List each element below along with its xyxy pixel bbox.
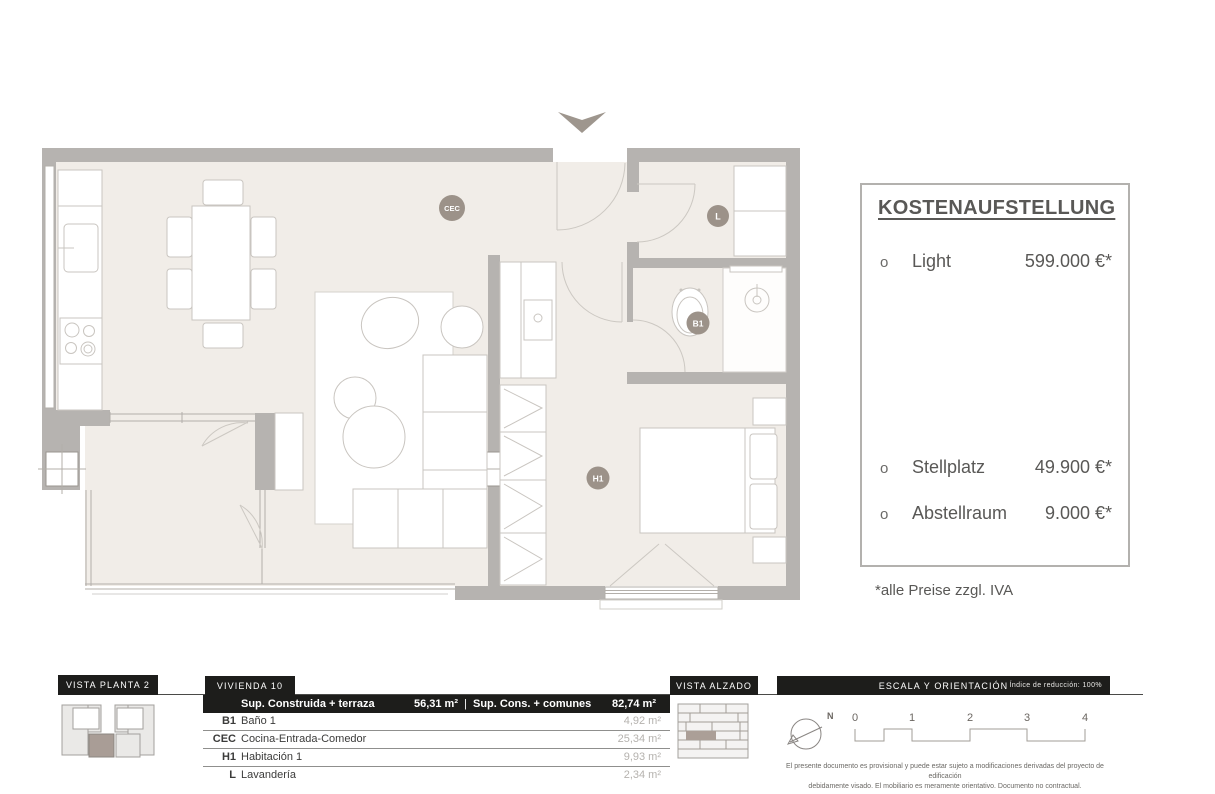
- svg-text:CEC: CEC: [444, 204, 460, 213]
- hallway-closet: [500, 262, 556, 378]
- cost-item-label: Abstellraum: [912, 503, 1007, 524]
- cost-item-price: 9.000 €*: [1045, 503, 1112, 524]
- room-code: L: [203, 767, 236, 784]
- svg-text:L: L: [715, 212, 721, 222]
- area-table: Sup. Construida + terraza 56,31 m² | Sup…: [203, 695, 670, 784]
- room-code: B1: [203, 713, 236, 730]
- svg-text:B1: B1: [693, 319, 704, 329]
- cost-item-stellplatz[interactable]: o Stellplatz 49.900 €*: [880, 457, 1112, 478]
- compass-icon: N: [788, 711, 834, 749]
- header-separator: |: [464, 695, 467, 713]
- room-name: Baño 1: [241, 713, 276, 730]
- scale-bar: 0 1 2 3 4: [852, 712, 1088, 741]
- disclaimer-line1: El presente documento es provisional y p…: [770, 762, 1120, 782]
- kitchen-furniture: [58, 170, 102, 410]
- room-area: 25,34 m²: [588, 731, 661, 748]
- bullet-icon: o: [880, 506, 912, 523]
- disclaimer-line2: debidamente visado. El mobiliario es mer…: [770, 782, 1120, 792]
- room-label-cec: CEC: [439, 195, 465, 221]
- cost-item-price: 599.000 €*: [1025, 251, 1112, 272]
- header-col1: Sup. Construida + terraza: [241, 695, 375, 713]
- svg-text:N: N: [827, 711, 834, 721]
- bullet-icon: o: [880, 460, 912, 477]
- escala-label: ESCALA Y ORIENTACIÓN: [879, 681, 1009, 691]
- vista-alzado-thumbnail: [678, 704, 748, 758]
- room-area: 4,92 m²: [588, 713, 661, 730]
- svg-text:0: 0: [852, 712, 858, 724]
- cost-panel: KOSTENAUFSTELLUNG o Light 599.000 €* o S…: [860, 183, 1130, 567]
- cost-item-label: Stellplatz: [912, 457, 985, 478]
- header-val1: 56,31 m²: [368, 695, 458, 713]
- bullet-icon: o: [880, 254, 912, 271]
- table-row: B1 Baño 1 4,92 m²: [203, 713, 670, 731]
- laundry-appliances: [734, 166, 786, 256]
- svg-text:2: 2: [967, 712, 973, 724]
- room-name: Habitación 1: [241, 749, 302, 766]
- price-footnote: *alle Preise zzgl. IVA: [875, 582, 1013, 599]
- svg-text:H1: H1: [593, 474, 604, 484]
- disclaimer: El presente documento es provisional y p…: [770, 762, 1120, 792]
- vivienda-tag: VIVIENDA 10: [205, 676, 295, 695]
- table-row: CEC Cocina-Entrada-Comedor 25,34 m²: [203, 731, 670, 749]
- entrance-arrow-icon: [558, 112, 606, 133]
- cost-item-label: Light: [912, 251, 951, 272]
- room-code: H1: [203, 749, 236, 766]
- table-row: H1 Habitación 1 9,93 m²: [203, 749, 670, 767]
- indice-reduccion-label: Índice de reducción: 100%: [1010, 676, 1103, 695]
- room-code: CEC: [203, 731, 236, 748]
- vista-planta-thumbnail: [62, 705, 154, 757]
- room-area: 2,34 m²: [588, 767, 661, 784]
- vista-planta-tag: VISTA PLANTA 2: [58, 675, 158, 695]
- cost-item-light[interactable]: o Light 599.000 €*: [880, 251, 1112, 272]
- cost-item-price: 49.900 €*: [1035, 457, 1112, 478]
- header-col2: Sup. Cons. + comunes: [473, 695, 591, 713]
- room-label-b1: B1: [687, 312, 710, 335]
- floorplan-page: .w{fill:#b6b3b0;stroke:none} .f{fill:#ff…: [0, 0, 1215, 794]
- cost-item-abstellraum[interactable]: o Abstellraum 9.000 €*: [880, 503, 1112, 524]
- room-label-h1: H1: [587, 467, 610, 490]
- header-val2: 82,74 m²: [612, 695, 656, 713]
- room-name: Lavandería: [241, 767, 296, 784]
- table-row: L Lavandería 2,34 m²: [203, 767, 670, 784]
- room-label-l: L: [707, 205, 729, 227]
- vista-alzado-tag: VISTA ALZADO: [670, 676, 758, 695]
- svg-text:4: 4: [1082, 712, 1088, 724]
- svg-text:1: 1: [909, 712, 915, 724]
- cost-panel-title: KOSTENAUFSTELLUNG: [878, 197, 1115, 220]
- room-area: 9,93 m²: [588, 749, 661, 766]
- svg-text:3: 3: [1024, 712, 1030, 724]
- room-name: Cocina-Entrada-Comedor: [241, 731, 366, 748]
- escala-orientacion-tag: ESCALA Y ORIENTACIÓN Índice de reducción…: [777, 676, 1110, 695]
- area-table-header: Sup. Construida + terraza 56,31 m² | Sup…: [203, 695, 670, 713]
